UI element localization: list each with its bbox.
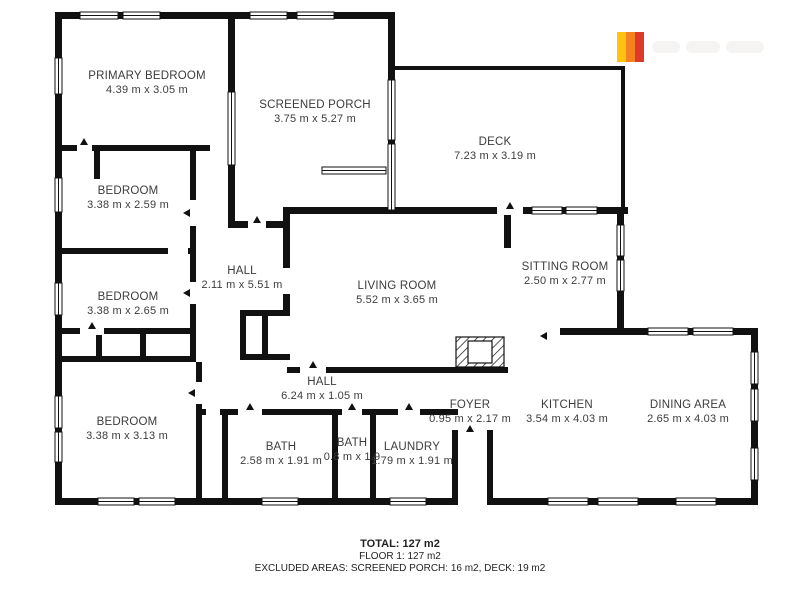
floor-area-text: FLOOR 1: 127 m2 (0, 551, 800, 562)
room-label-foyer: FOYER 0.95 m x 2.17 m (429, 399, 511, 426)
room-name: BEDROOM (87, 185, 169, 199)
room-name: DINING AREA (647, 399, 729, 413)
logo-stripe-yellow (617, 32, 626, 62)
room-name: DECK (454, 136, 536, 150)
room-label-bedroom-3: BEDROOM 3.38 m x 2.65 m (87, 291, 169, 318)
room-dims: 2.11 m x 5.51 m (201, 279, 282, 293)
room-name: FOYER (429, 399, 511, 413)
room-label-screened-porch: SCREENED PORCH 3.75 m x 5.27 m (259, 99, 370, 126)
logo-stripe-orange (626, 32, 635, 62)
room-label-bedroom-2: BEDROOM 3.38 m x 2.59 m (87, 185, 169, 212)
area-summary: TOTAL: 127 m2 FLOOR 1: 127 m2 EXCLUDED A… (0, 538, 800, 574)
room-name: HALL (281, 376, 363, 390)
brand-logo (617, 32, 644, 62)
room-label-bath-1: BATH 2.58 m x 1.91 m (240, 441, 322, 468)
room-name: LAUNDRY (371, 441, 453, 455)
room-label-primary-bedroom: PRIMARY BEDROOM 4.39 m x 3.05 m (88, 70, 206, 97)
room-label-kitchen: KITCHEN 3.54 m x 4.03 m (526, 399, 608, 426)
room-dims: 2.50 m x 2.77 m (522, 275, 609, 289)
room-label-hall-upper: HALL 2.11 m x 5.51 m (201, 265, 282, 292)
room-name: SCREENED PORCH (259, 99, 370, 113)
total-area-text: TOTAL: 127 m2 (0, 538, 800, 550)
room-name: BEDROOM (86, 416, 168, 430)
room-name: SITTING ROOM (522, 261, 609, 275)
room-name: BEDROOM (87, 291, 169, 305)
room-label-living-room: LIVING ROOM 5.52 m x 3.65 m (356, 280, 438, 307)
fireplace-icon (456, 337, 504, 367)
room-name: PRIMARY BEDROOM (88, 70, 206, 84)
room-dims: 4.39 m x 3.05 m (88, 84, 206, 98)
logo-wordmark (652, 38, 772, 56)
room-dims: 1.79 m x 1.91 m (371, 455, 453, 469)
room-dims: 3.38 m x 3.13 m (86, 430, 168, 444)
excluded-areas-text: EXCLUDED AREAS: SCREENED PORCH: 16 m2, D… (0, 563, 800, 574)
room-dims: 3.38 m x 2.65 m (87, 305, 169, 319)
room-name: KITCHEN (526, 399, 608, 413)
room-label-laundry: LAUNDRY 1.79 m x 1.91 m (371, 441, 453, 468)
room-dims: 2.58 m x 1.91 m (240, 455, 322, 469)
room-dims: 3.75 m x 5.27 m (259, 113, 370, 127)
room-dims: 0.95 m x 2.17 m (429, 413, 511, 427)
room-label-deck: DECK 7.23 m x 3.19 m (454, 136, 536, 163)
room-label-dining-area: DINING AREA 2.65 m x 4.03 m (647, 399, 729, 426)
room-name: BATH (240, 441, 322, 455)
room-label-sitting-room: SITTING ROOM 2.50 m x 2.77 m (522, 261, 609, 288)
room-dims: 3.38 m x 2.59 m (87, 199, 169, 213)
room-label-bedroom-4: BEDROOM 3.38 m x 3.13 m (86, 416, 168, 443)
room-dims: 5.52 m x 3.65 m (356, 294, 438, 308)
room-name: HALL (201, 265, 282, 279)
room-dims: 2.65 m x 4.03 m (647, 413, 729, 427)
room-dims: 7.23 m x 3.19 m (454, 150, 536, 164)
room-label-hall-lower: HALL 6.24 m x 1.05 m (281, 376, 363, 403)
room-dims: 3.54 m x 4.03 m (526, 413, 608, 427)
room-dims: 6.24 m x 1.05 m (281, 390, 363, 404)
room-name: LIVING ROOM (356, 280, 438, 294)
logo-stripe-red (635, 32, 644, 62)
